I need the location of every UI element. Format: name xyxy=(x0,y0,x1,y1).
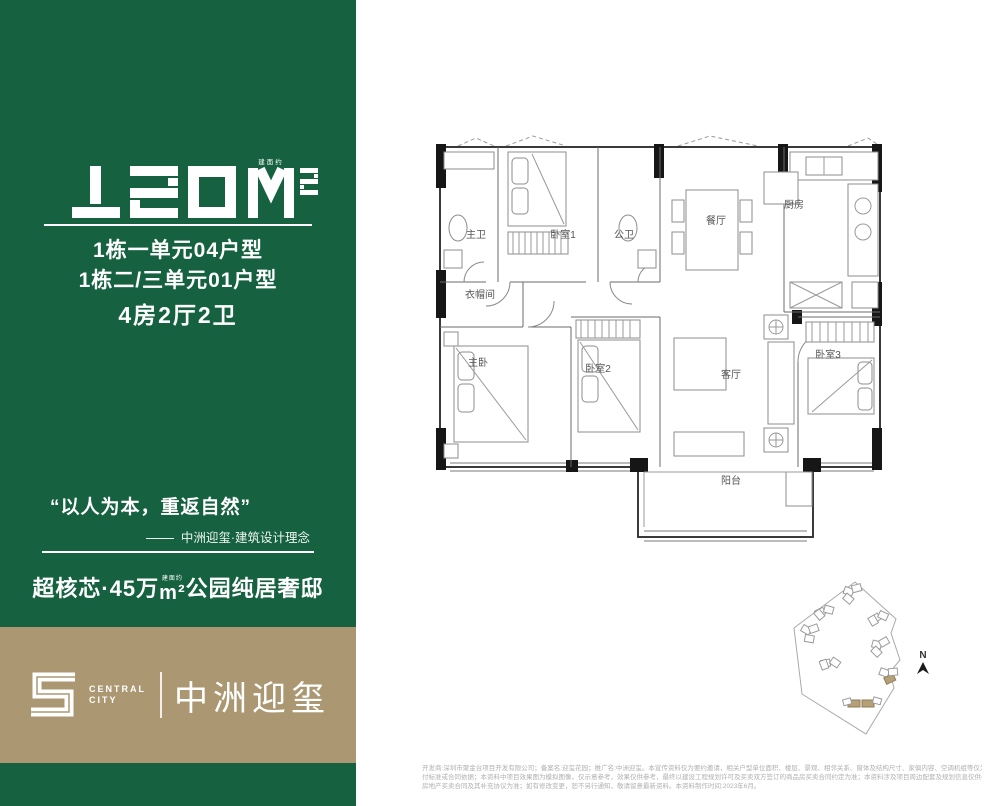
left-brand-panel: 建面约 1栋一单元04户型 1栋二/三单元01户型 4房2厅2卫 “以人为本，重… xyxy=(0,0,356,627)
headline-unit-note: 建面约 xyxy=(159,576,185,582)
building-cluster-highlighted xyxy=(843,668,898,707)
unit-line-1: 1栋一单元04户型 xyxy=(0,236,356,266)
north-label: N xyxy=(919,650,926,661)
layout-line: 4房2厅2卫 xyxy=(0,299,356,331)
logo-en-line2: CITY xyxy=(89,695,146,706)
headline-unit-symbol: m² xyxy=(159,582,185,604)
attribution-text: 中洲迎玺·建筑设计理念 xyxy=(181,531,310,545)
room-label-closet: 衣帽间 xyxy=(465,288,495,301)
digit-1 xyxy=(72,166,120,218)
logo-panel: CENTRAL CITY 中洲迎玺 xyxy=(0,627,356,763)
headline: 超核芯·45万建面约m²公园纯居奢邸 xyxy=(0,571,356,603)
headline-pre: 超核芯·45万 xyxy=(32,576,159,601)
floorplan: 主卫 卧室1 公卫 餐厅 厨房 衣帽间 主卧 卧室2 客厅 卧室3 阳台 xyxy=(428,132,902,566)
room-label-master-bed: 主卧 xyxy=(468,356,488,369)
room-label-living: 客厅 xyxy=(721,368,741,381)
disclaimer-line-2: 付标准或合同依据；本资料中项目效果图为模拟图像，仅示意参考，效果仅供参考，最终以… xyxy=(422,773,982,782)
area-note: 建面约 xyxy=(258,157,284,166)
unit-info: 1栋一单元04户型 1栋二/三单元01户型 4房2厅2卫 xyxy=(0,236,356,331)
logo-separator xyxy=(160,672,162,718)
headline-post: 公园纯居奢邸 xyxy=(186,576,324,601)
central-city-s-logo-icon xyxy=(26,668,80,722)
quote-attribution: 中洲迎玺·建筑设计理念 xyxy=(30,527,310,546)
logo-en-text: CENTRAL CITY xyxy=(89,684,146,706)
site-plan: N xyxy=(782,576,982,771)
window-bay-dashes xyxy=(458,136,880,146)
disclaimer-line-1: 开发商:深圳市聚金台项目开发有限公司；备案名:迎玺花园；推广名:中洲迎玺。本宣传… xyxy=(422,764,982,773)
bottom-green-strip xyxy=(0,763,356,806)
attribution-dash xyxy=(146,538,174,539)
logo-cn-text: 中洲迎玺 xyxy=(174,671,330,720)
room-label-public-bath: 公卫 xyxy=(614,230,634,241)
unit-letter-m xyxy=(248,168,294,218)
room-label-dining: 餐厅 xyxy=(706,214,726,227)
digit-2 xyxy=(130,166,178,218)
logo-en-line1: CENTRAL xyxy=(89,684,146,695)
unit-superscript-2 xyxy=(300,168,318,195)
room-label-balcony: 阳台 xyxy=(721,474,741,487)
room-label-master-bath: 主卫 xyxy=(466,229,486,241)
area-title-120m2: 建面约 xyxy=(72,156,322,220)
room-label-bedroom-1: 卧室1 xyxy=(550,228,576,241)
unit-line-2: 1栋二/三单元01户型 xyxy=(0,266,356,296)
brand-quote: “以人为本，重返自然” xyxy=(50,492,350,519)
room-label-bedroom-3: 卧室3 xyxy=(815,348,841,361)
digit-0 xyxy=(188,166,236,218)
disclaimer-line-3: 房地产买卖合同及其补充协议为准；如有修改变更，恕不另行通知，敬请留意最新资料。本… xyxy=(422,782,982,791)
headline-unit: 建面约m² xyxy=(159,575,185,603)
room-label-bedroom-2: 卧室2 xyxy=(585,362,611,375)
building-cluster xyxy=(801,584,890,671)
room-label-kitchen: 厨房 xyxy=(784,198,804,211)
site-boundary xyxy=(794,582,900,734)
disclaimer: 开发商:深圳市聚金台项目开发有限公司；备案名:迎玺花园；推广名:中洲迎玺。本宣传… xyxy=(422,764,982,791)
title-divider xyxy=(44,224,312,226)
north-arrow: N xyxy=(917,650,929,674)
quote-divider xyxy=(42,551,314,553)
